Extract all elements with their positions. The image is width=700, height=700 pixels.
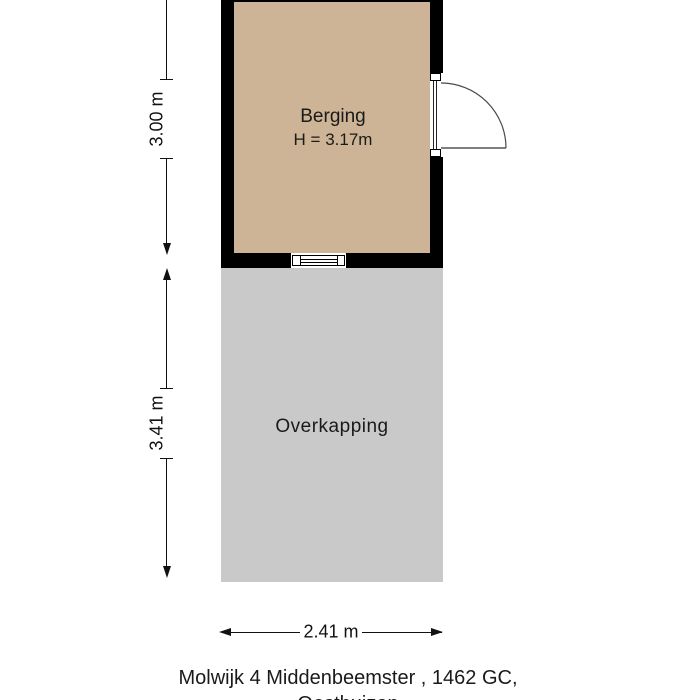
dimension-line-width xyxy=(362,632,442,633)
window-glazing-line xyxy=(301,262,337,263)
floorplan-canvas: Berging H = 3.17m Overkapping 3.00 m 3.4… xyxy=(0,0,700,700)
dimension-label-overkapping-depth: 3.41 m xyxy=(147,395,168,450)
door-jamb-bottom xyxy=(430,149,441,157)
window-glazing-line xyxy=(301,259,337,260)
arrow-up-icon xyxy=(163,268,171,280)
dimension-line-overkapping-depth xyxy=(166,459,167,566)
arrow-right-icon xyxy=(431,628,443,636)
room-label-berging: Berging xyxy=(300,106,366,128)
arrow-down-icon xyxy=(163,243,171,255)
door-frame-line xyxy=(436,81,437,149)
dimension-line-berging-depth xyxy=(166,159,167,243)
dimension-line-berging-depth xyxy=(166,0,167,79)
address-caption-line1: Molwijk 4 Middenbeemster , 1462 GC, xyxy=(178,667,517,690)
dimension-line-overkapping-depth xyxy=(166,280,167,388)
window-mullion xyxy=(337,255,338,266)
room-height-label-berging: H = 3.17m xyxy=(294,130,373,150)
arrow-left-icon xyxy=(219,628,231,636)
window-mullion xyxy=(300,255,301,266)
dimension-tick xyxy=(160,388,173,389)
door-frame-line xyxy=(433,81,434,149)
arrow-down-icon xyxy=(163,566,171,578)
address-caption-line2: Oosthuizen xyxy=(297,693,398,700)
dimension-label-berging-depth: 3.00 m xyxy=(147,91,168,146)
dimension-line-width xyxy=(231,632,300,633)
dimension-label-width: 2.41 m xyxy=(303,622,358,643)
dimension-tick xyxy=(160,79,173,80)
room-label-overkapping: Overkapping xyxy=(275,416,388,438)
door-swing-arc xyxy=(441,83,506,148)
door-jamb-top xyxy=(430,73,441,81)
